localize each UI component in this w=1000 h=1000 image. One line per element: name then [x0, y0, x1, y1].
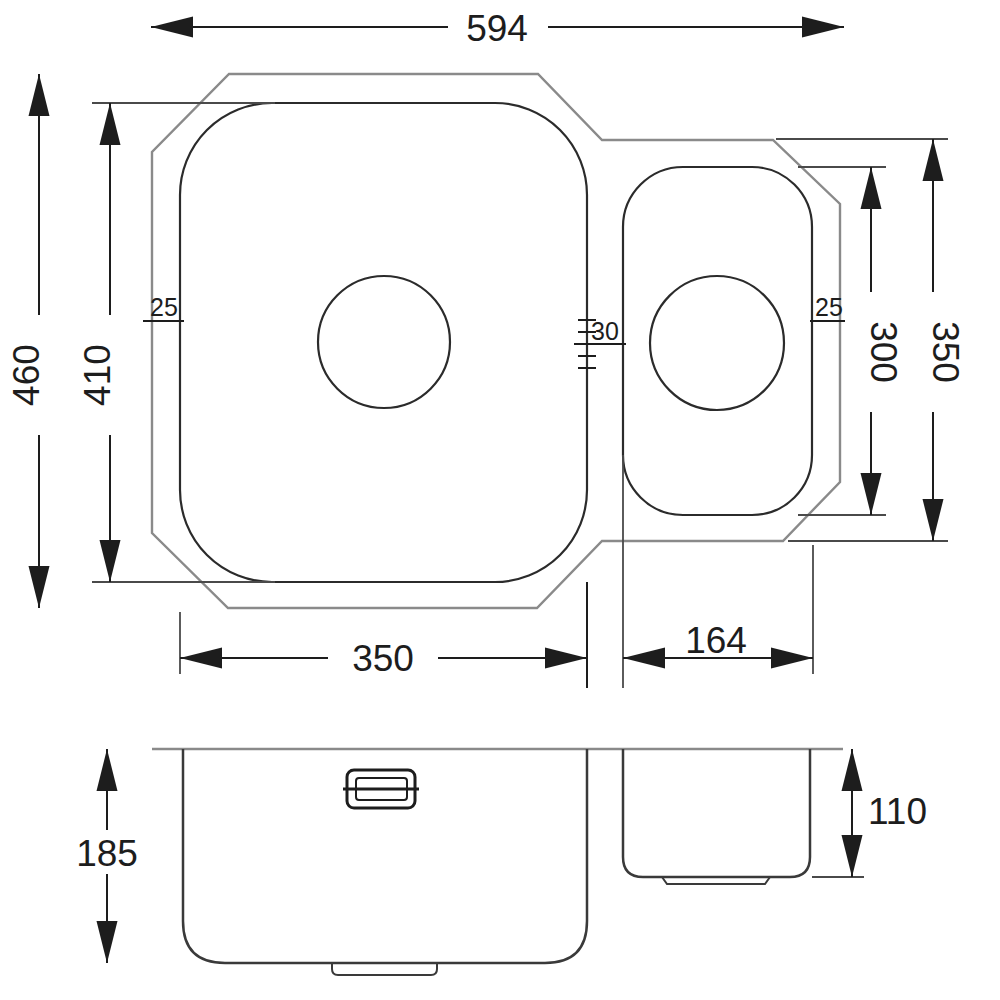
technical-drawing-canvas: 594 460 410 25 30 25 300 350 350 164 — [0, 0, 1000, 1000]
arrowhead-right — [771, 648, 813, 669]
arrowhead-down — [923, 499, 944, 541]
section-main-bowl-drain-tab — [332, 963, 437, 975]
arrowhead-left — [151, 17, 193, 38]
plan-rim-outline — [152, 74, 840, 608]
arrowhead-up — [29, 74, 50, 116]
dim-overall-depth-label: 460 — [6, 344, 47, 406]
dim-right-section-depth-label: 350 — [925, 321, 966, 383]
arrowhead-right — [545, 648, 587, 669]
dim-rim-inset-right-label: 25 — [815, 293, 843, 321]
arrowhead-down — [842, 835, 863, 877]
small-bowl-drain — [650, 276, 784, 410]
arrowhead-down — [861, 473, 882, 515]
dim-small-bowl-width-label: 164 — [685, 620, 747, 661]
arrowhead-left — [623, 648, 665, 669]
arrowhead-up — [861, 167, 882, 209]
dim-main-bowl-depth-label: 410 — [77, 344, 118, 406]
arrowhead-up — [97, 749, 118, 791]
dim-overall-width-label: 594 — [466, 8, 528, 49]
dim-bowl-divider: 30 — [574, 317, 626, 368]
section-main-bowl-profile — [183, 749, 587, 963]
arrowhead-up — [842, 749, 863, 791]
arrowhead-up — [100, 103, 121, 145]
dim-bowl-divider-label: 30 — [591, 317, 619, 345]
dim-small-bowl-height-label: 110 — [868, 791, 927, 832]
arrowhead-down — [100, 540, 121, 582]
arrowhead-down — [29, 566, 50, 608]
dim-main-bowl-width-label: 350 — [352, 638, 414, 679]
dim-rim-inset-left-label: 25 — [150, 293, 178, 321]
sink-drawing-svg: 594 460 410 25 30 25 300 350 350 164 — [0, 0, 1000, 1000]
arrowhead-left — [180, 648, 222, 669]
arrowhead-down — [97, 921, 118, 963]
dim-small-bowl-depth-label: 300 — [863, 321, 904, 383]
dim-main-bowl-height-label: 185 — [76, 833, 138, 874]
arrowhead-right — [802, 17, 844, 38]
main-bowl-outline — [180, 103, 587, 582]
section-small-bowl-profile — [623, 749, 810, 877]
arrowhead-up — [923, 139, 944, 181]
main-bowl-drain — [318, 276, 450, 408]
